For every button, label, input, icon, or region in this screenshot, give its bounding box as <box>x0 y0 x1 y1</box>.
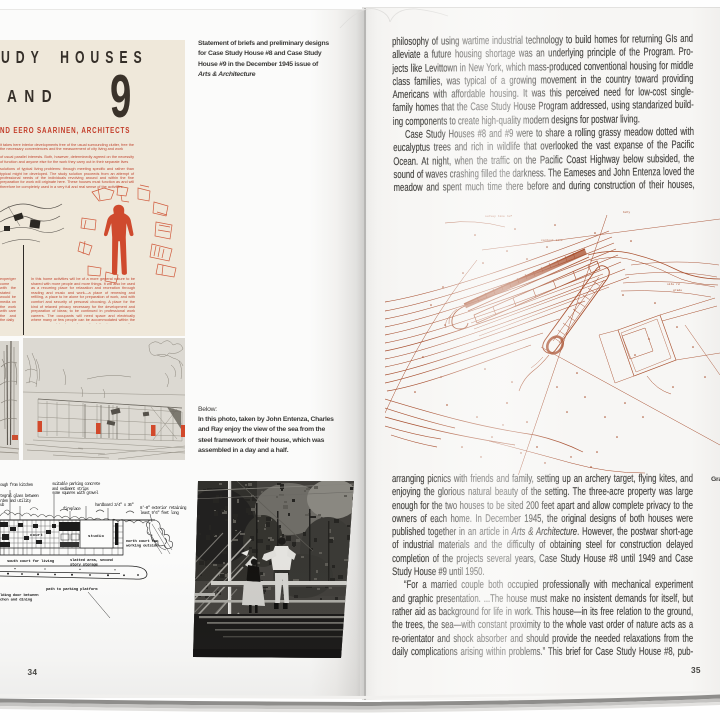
svg-text:studio: studio <box>88 534 105 539</box>
svg-text:north court for: north court for <box>126 539 159 544</box>
svg-text:bdry: bdry <box>623 210 630 214</box>
svg-text:grade: grade <box>673 288 682 292</box>
svg-text:court: court <box>30 533 43 538</box>
svg-text:contour line: contour line <box>541 238 563 242</box>
svg-text:working outside: working outside <box>126 544 159 549</box>
svg-text:site rd: site rd <box>667 282 680 286</box>
svg-text:survey line ref: survey line ref <box>485 214 512 218</box>
